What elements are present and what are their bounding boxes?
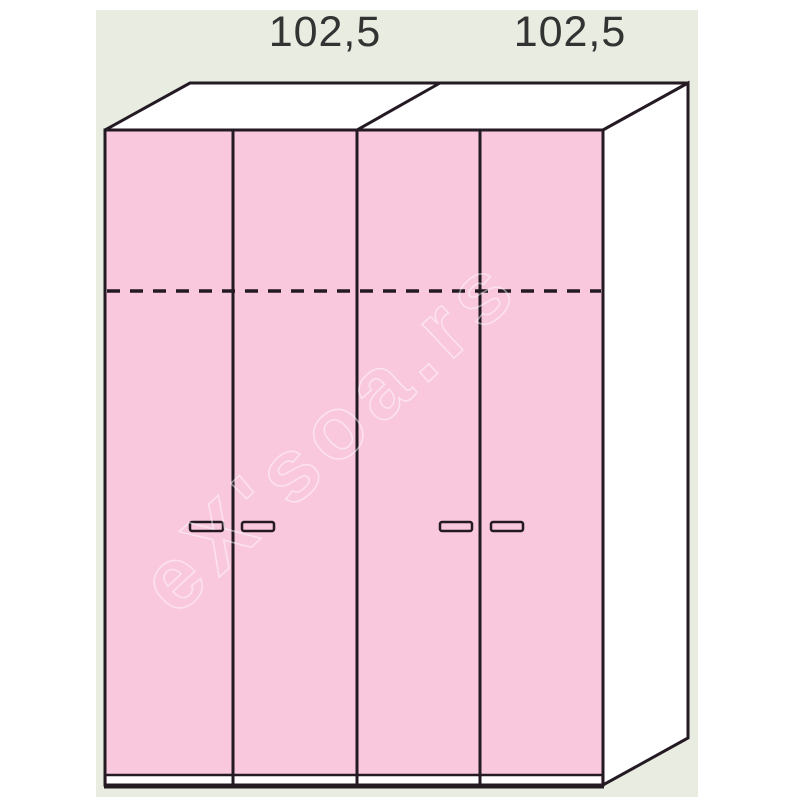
wardrobe-plinth xyxy=(107,776,601,784)
handle-door-4 xyxy=(491,522,523,531)
handle-door-2 xyxy=(242,522,274,531)
handle-door-3 xyxy=(440,522,472,531)
catalog-image: 102,5 102,5 eX'soa.rs xyxy=(0,0,800,802)
wardrobe-front-face xyxy=(105,130,603,785)
wardrobe-side-panel xyxy=(603,83,688,785)
handle-door-1 xyxy=(190,522,223,531)
wardrobe-drawing xyxy=(0,0,800,802)
